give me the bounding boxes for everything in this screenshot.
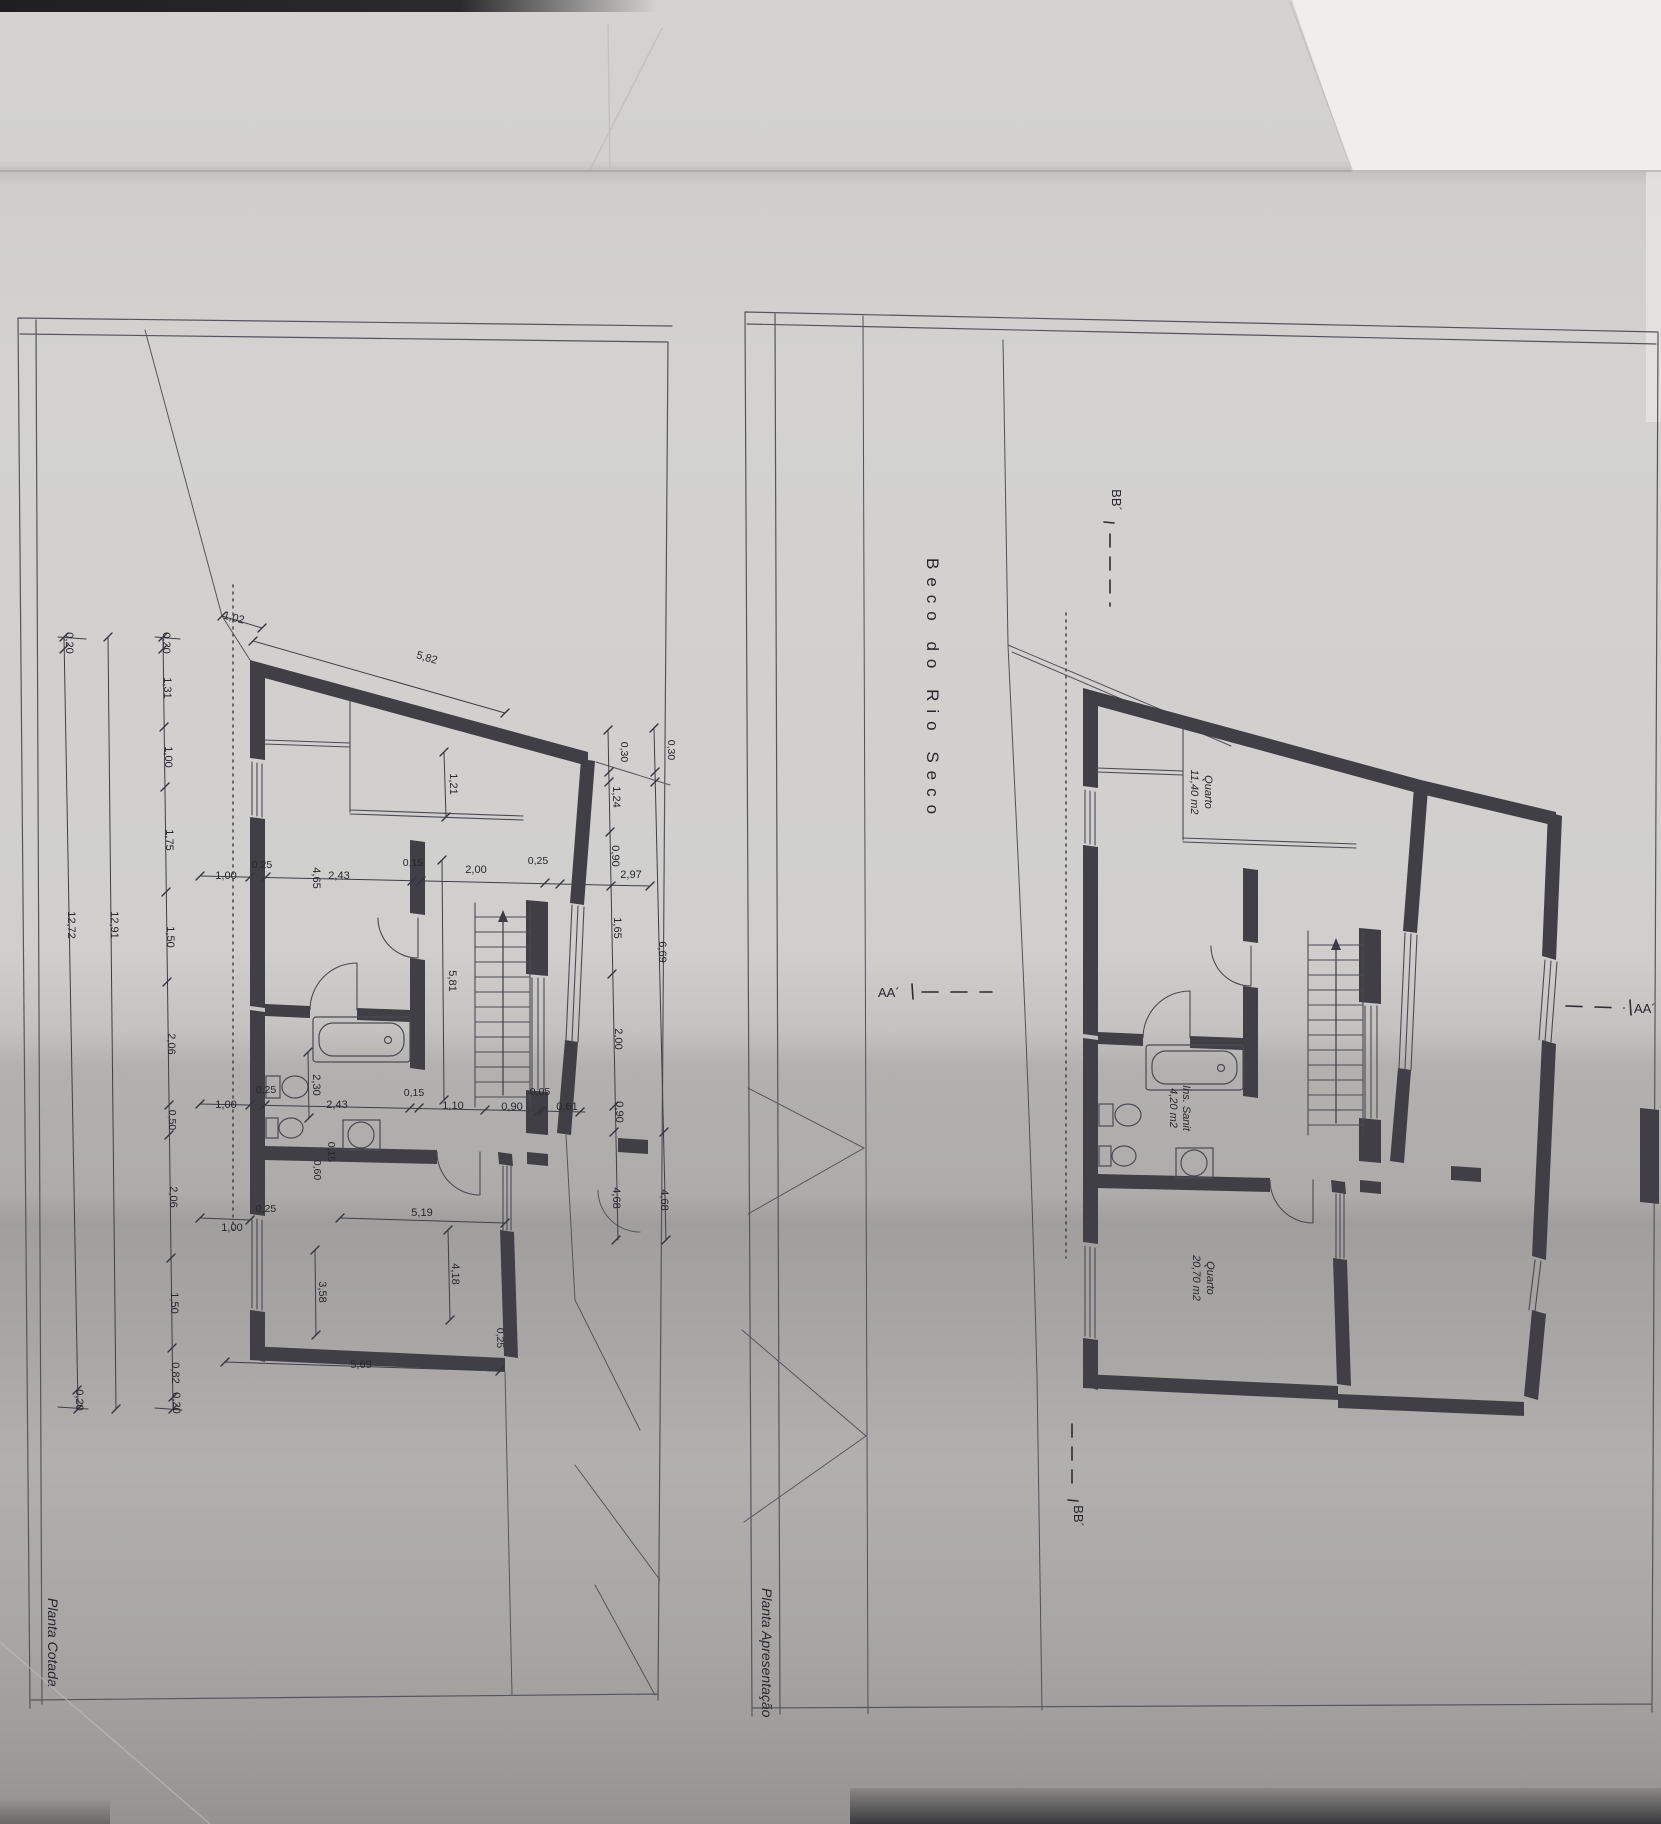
- dim-label: 0,25: [494, 1328, 506, 1349]
- section-label-bb: BB´: [1109, 489, 1124, 511]
- dim-label: 4,68: [610, 1187, 622, 1208]
- dim-label: 2,00: [612, 1028, 624, 1049]
- dim-label: 2,06: [167, 1186, 179, 1207]
- left-sheet-title: Planta Cotada: [45, 1598, 61, 1687]
- dim-label: 0,25: [252, 859, 273, 871]
- dim-label: 0,82: [169, 1362, 181, 1383]
- section-line-bb-top: BB´: [1104, 489, 1124, 606]
- dim-label: 1,02: [222, 610, 246, 627]
- dim-label: 2,43: [328, 870, 349, 882]
- room-name: Quarto: [1204, 1261, 1216, 1295]
- street-edges: [863, 316, 1421, 1714]
- room-label-bathroom: Ins. Sanit 4,20 m2: [1167, 1085, 1192, 1132]
- room-area: 20,70 m2: [1190, 1254, 1202, 1301]
- dim-label: 1,75: [163, 829, 175, 850]
- section-label-bb: BB´: [1071, 1505, 1086, 1527]
- room-area: 11,40 m2: [1188, 769, 1200, 814]
- room-label-bedroom-upper: Quarto 11,40 m2: [1188, 769, 1214, 814]
- dim-label: 2,00: [465, 864, 486, 876]
- left-sheet-border: [18, 318, 672, 1708]
- margin-fold-marks: [742, 1088, 866, 1522]
- dim-label: 1,00: [215, 1099, 236, 1111]
- floor-plans-drawing: 0,20 1,31 1,00 1,75 1,50 2,06 0,50 2,06 …: [0, 0, 1661, 1824]
- dim-label: 5,69: [350, 1359, 371, 1371]
- dim-label: 0,25: [256, 1084, 277, 1096]
- right-sheet: BB´ BB´ AA´ AA´ Beco: [742, 312, 1659, 1718]
- dim-label: 0,50: [166, 1110, 178, 1131]
- dim-label: 5,19: [411, 1207, 432, 1219]
- dim-label: 1,00: [162, 746, 174, 767]
- dim-label: 2,06: [165, 1033, 177, 1054]
- dim-label: 1,65: [611, 917, 623, 938]
- dim-label: 3,58: [316, 1281, 328, 1302]
- dim-label: 1,50: [168, 1292, 180, 1313]
- paper-creases: [0, 2, 1352, 1824]
- dim-label: 0,90: [501, 1101, 522, 1113]
- dim-label: 4,68: [658, 1189, 670, 1210]
- dim-label: 0,61: [556, 1101, 577, 1113]
- photographed-blueprint: 0,20 1,31 1,00 1,75 1,50 2,06 0,50 2,06 …: [0, 0, 1661, 1824]
- dim-label: 0,20: [170, 1392, 182, 1413]
- room-name: Quarto: [1202, 775, 1214, 809]
- dim-label: 6,69: [656, 941, 668, 962]
- dim-label: 0,30: [618, 742, 630, 763]
- section-label-aa: AA´: [878, 985, 900, 1000]
- right-sheet-title: Planta Apresentação: [759, 1588, 775, 1718]
- dim-label: 0,20: [63, 632, 75, 653]
- dim-label: 12,91: [108, 911, 120, 939]
- dim-label: 0,30: [665, 740, 677, 761]
- dim-label: 1,31: [161, 677, 173, 698]
- dim-label: 1,24: [610, 786, 622, 807]
- dim-label: 0,05: [530, 1086, 551, 1098]
- left-sheet: 0,20 1,31 1,00 1,75 1,50 2,06 0,50 2,06 …: [18, 318, 677, 1708]
- dim-label: 0,90: [609, 845, 621, 866]
- dim-label: 5,82: [415, 649, 439, 666]
- dim-label: 12,72: [65, 911, 77, 939]
- room-label-bedroom-lower: Quarto 20,70 m2: [1190, 1254, 1216, 1301]
- dim-label: 1,00: [221, 1222, 242, 1234]
- dim-label: 1,10: [442, 1100, 463, 1112]
- dim-label: 0,20: [160, 632, 172, 653]
- dim-label: 5,81: [446, 970, 458, 991]
- extension-walls: [1338, 780, 1659, 1416]
- dim-label: 0,20: [73, 1389, 85, 1410]
- dim-label: 0,25: [256, 1203, 277, 1215]
- dim-label: 4,65: [310, 867, 322, 888]
- section-line-aa-left: AA´: [878, 984, 992, 1000]
- dim-label: 1,21: [447, 773, 459, 794]
- dim-label: 0,15: [403, 857, 424, 869]
- section-label-aa: AA´: [1634, 1001, 1656, 1016]
- room-area: 4,20 m2: [1167, 1088, 1179, 1128]
- room-name: Ins. Sanit: [1180, 1085, 1192, 1132]
- dim-label: 0,90: [613, 1101, 625, 1122]
- dim-label: 1,00: [215, 870, 236, 882]
- dim-label: 0,15: [325, 1142, 337, 1163]
- dim-label: 0,60: [311, 1160, 323, 1181]
- section-line-aa-right: AA´: [1566, 1000, 1656, 1016]
- dim-label: 0,25: [528, 855, 549, 867]
- street-name-label: Beco do Rio Seco: [923, 558, 942, 822]
- dim-label: 0,15: [404, 1087, 425, 1099]
- dim-label: 2,43: [326, 1099, 347, 1111]
- dim-label: 2,30: [310, 1074, 322, 1095]
- right-sheet-border: [745, 312, 1658, 1716]
- dim-label: 2,97: [620, 869, 641, 881]
- dim-label: 1,50: [164, 926, 176, 947]
- dim-label: 4,18: [449, 1263, 461, 1284]
- section-line-bb-bottom: BB´: [1068, 1424, 1086, 1527]
